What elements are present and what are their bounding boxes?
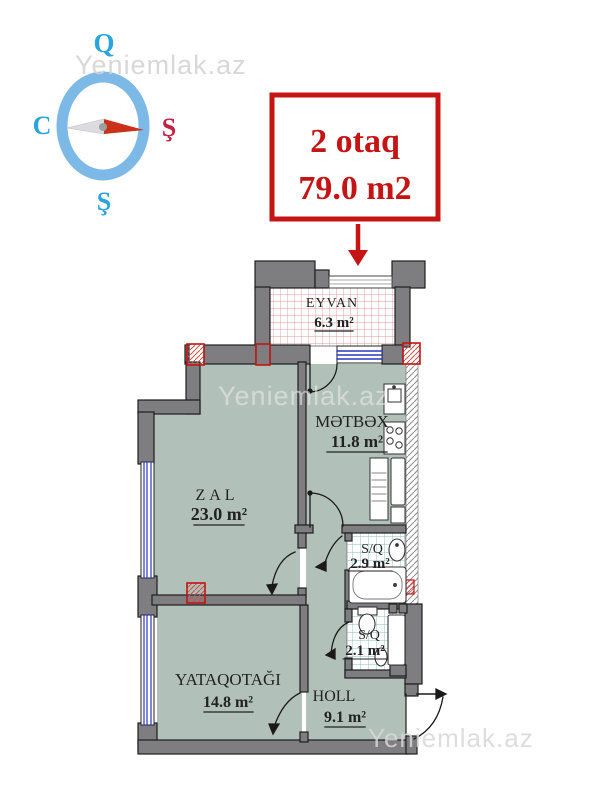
kitchen-counter-shelves: [370, 458, 388, 520]
wc-area: 2.1 m²: [345, 643, 385, 659]
wall-entry-stub: [405, 684, 418, 696]
column-northeast-hatched: [403, 343, 420, 364]
livingroom-area: 23.0 m²: [191, 504, 247, 524]
hall-floor-corridor: [306, 527, 347, 680]
compass-south-label: Ş: [97, 187, 111, 216]
bedroom-window: [141, 615, 154, 725]
wall-kitchen-bottom-right: [342, 525, 406, 533]
compass-pivot-icon: [99, 123, 107, 131]
wall-bedroom-hall-stub: [300, 732, 308, 742]
wc-duct-a: [389, 604, 397, 613]
watermark-top: Yeniemlak.az: [75, 50, 247, 80]
compass-west-label: C: [33, 111, 52, 140]
column-north-gray: [256, 344, 270, 365]
banner-area-text: 79.0 m2: [298, 170, 411, 207]
wall-north-b: [270, 345, 310, 364]
stove-burner-icon: [387, 438, 393, 444]
wc-duct-c: [390, 665, 406, 676]
kitchen-fridge: [391, 458, 405, 505]
balcony-area: 6.3 m²: [314, 315, 354, 331]
floor-plan: EYVAN 6.3 m² MƏTBƏX 11.8 m² ZAL 23.0 m² …: [138, 261, 446, 754]
kitchen-cabinet: [391, 507, 405, 523]
column-mid-hatched: [187, 583, 205, 603]
wc-name: S/Q: [358, 628, 380, 643]
balcony-name: EYVAN: [306, 296, 358, 311]
wall-zal-bedroom: [152, 595, 306, 605]
watermark-bottom: Yeniemlak.az: [368, 723, 534, 753]
wall-bath-left-stub: [345, 533, 352, 541]
listing-banner: 2 otaq 79.0 m2: [272, 95, 438, 266]
wall-balcony-top-left: [255, 261, 315, 288]
wall-wc-left-stub: [345, 609, 352, 622]
wc-shaft: [388, 615, 405, 665]
bedroom-name: YATAQOTAĞI: [175, 670, 281, 689]
bathtub-drain-icon: [394, 584, 397, 587]
compass-needle-east-icon: [104, 119, 144, 134]
wall-west-mid: [138, 412, 154, 464]
wall-balcony-top-step: [315, 270, 329, 288]
wall-bedroom-hall: [300, 605, 308, 692]
hall-name: HOLL: [313, 688, 356, 705]
livingroom-window: [141, 462, 154, 578]
wall-north-c: [382, 345, 403, 364]
wc-duct-b: [399, 604, 407, 613]
kitchen-window: [337, 346, 382, 363]
kitchen-name: MƏTBƏX: [315, 412, 389, 431]
floorplan-page: Q C Ş Ş Yeniemlak.az 2 otaq 79.0 m2: [0, 0, 600, 800]
wall-balcony-top-right: [392, 261, 425, 288]
stove-burner-icon: [396, 428, 402, 434]
wall-north-a: [204, 345, 256, 364]
hall-area: 9.1 m²: [324, 709, 366, 726]
wall-east-lower: [405, 604, 422, 684]
banner-arrow-head-icon: [348, 250, 368, 266]
compass-east-label: Ş: [162, 113, 176, 142]
column-north-hatched: [187, 344, 204, 365]
bathroom-sink: [389, 539, 405, 561]
floorplan-image: Q C Ş Ş Yeniemlak.az 2 otaq 79.0 m2: [0, 0, 600, 800]
adjacent-wall-hatch: [406, 364, 418, 604]
livingroom-name: ZAL: [195, 487, 238, 504]
stove-burner-icon: [396, 442, 402, 448]
bathtub: [349, 567, 406, 603]
bathroom-name: S/Q: [361, 542, 383, 557]
watermark-middle: Yeniemlak.az: [218, 381, 390, 411]
kitchen-sink-bowl: [388, 389, 401, 402]
wall-balcony-right: [395, 287, 410, 347]
banner-rooms-text: 2 otaq: [310, 123, 400, 160]
bathroom-area: 2.9 m²: [350, 556, 390, 572]
kitchen-area: 11.8 m²: [331, 432, 383, 451]
compass-needle-west-icon: [67, 119, 104, 134]
wall-balcony-left: [255, 287, 270, 347]
kitchen-faucet-icon: [393, 386, 396, 389]
balcony-top-window: [329, 276, 392, 288]
bedroom-area: 14.8 m²: [203, 694, 253, 711]
bathroom-sink-faucet-icon: [396, 544, 399, 547]
